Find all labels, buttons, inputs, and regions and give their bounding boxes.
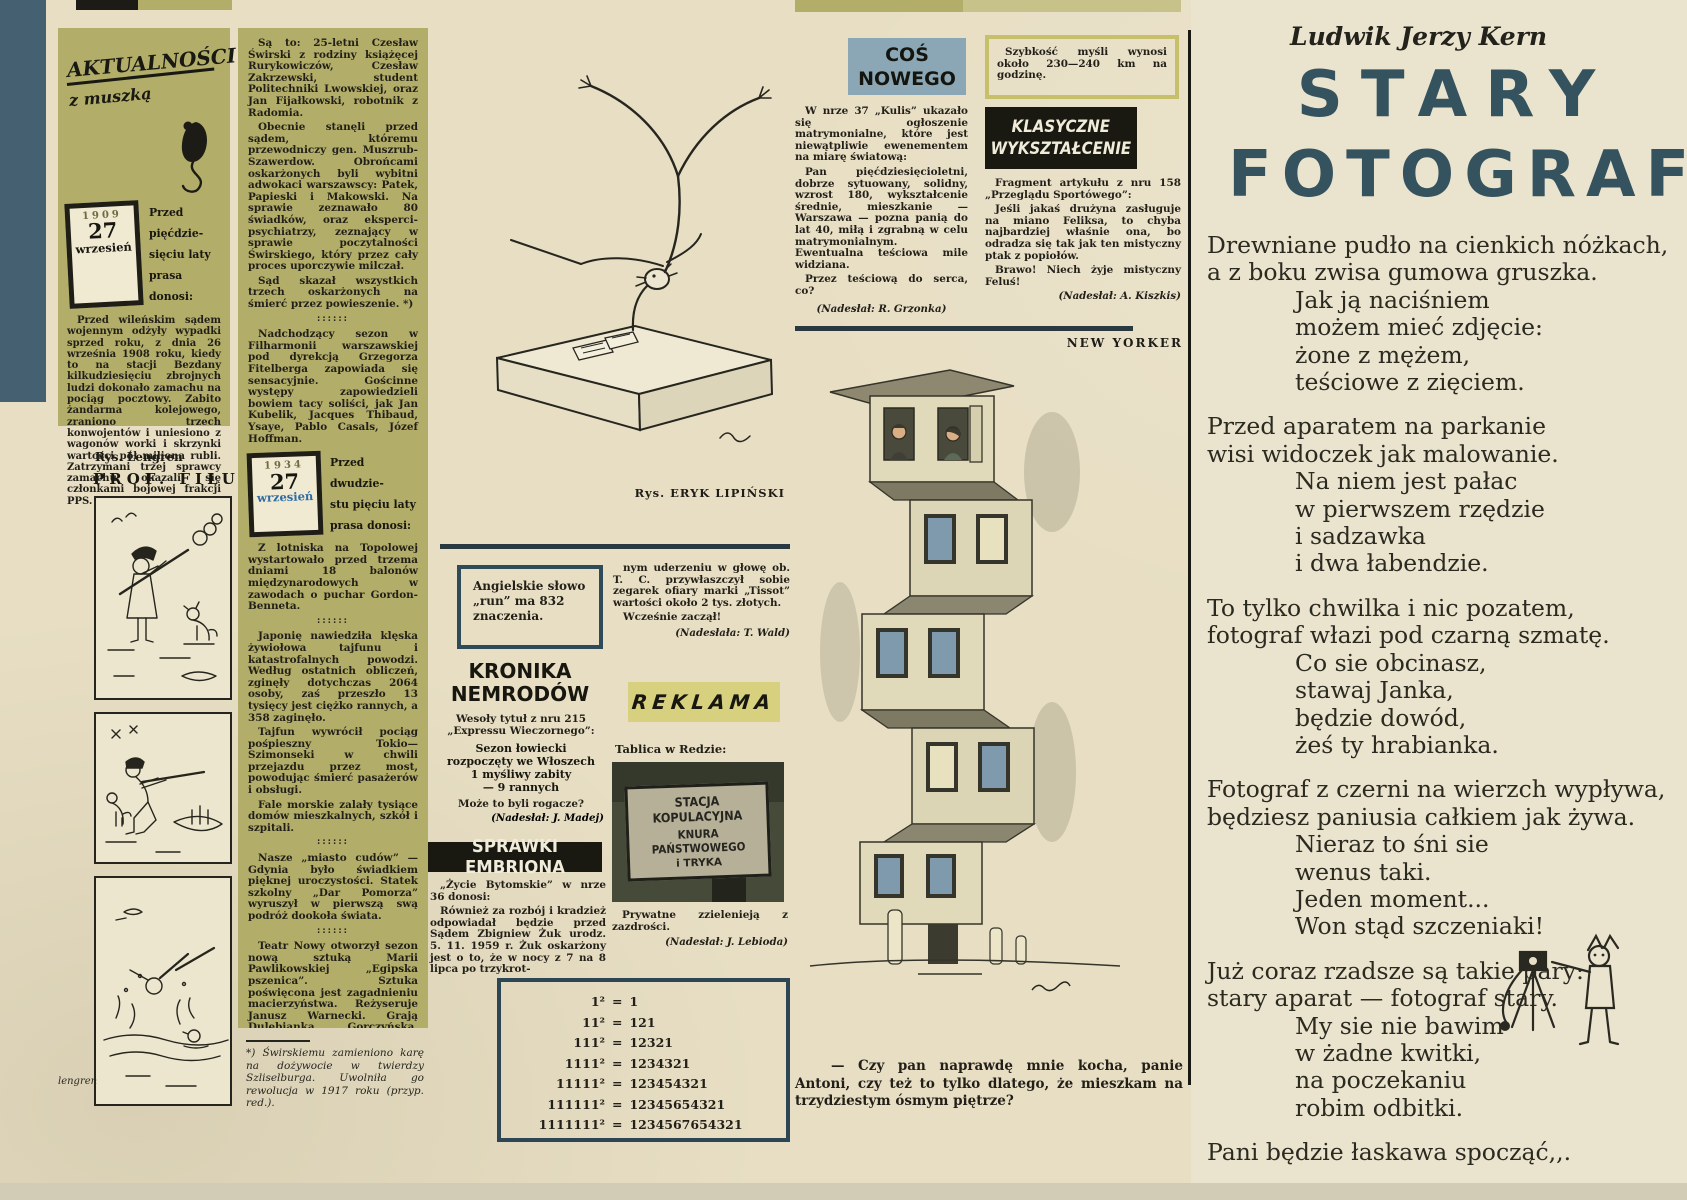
math-row: 11²=121 (527, 1013, 786, 1034)
sign-board: STACJA KOPULACYJNA KNURA PAŃSTWOWEGO i T… (624, 782, 771, 882)
math-equals: = (605, 1054, 629, 1075)
sprawki-intro: „Życie Bytomskie” w nrze 36 donosi: (430, 880, 606, 903)
news-paragraph: Z lotniska na Topolowej wystartowało prz… (248, 543, 418, 613)
cos-paragraph: Pan pięćdziesięcioletni, dobrze sytuowan… (795, 167, 968, 271)
math-left: 1111111² (527, 1115, 605, 1136)
math-right: 12321 (629, 1033, 673, 1054)
photographer-doodle-drawing (1492, 922, 1632, 1062)
date-badge-1934: 1934 27 wrzesień (247, 451, 324, 538)
klasyczne-intro: Fragment artykułu z nru 158 „Przeglądu S… (985, 178, 1181, 201)
news-column-b: Są to: 25-letni Czesław Świrski z rodzin… (238, 28, 428, 1028)
poem-author: Ludwik Jerzy Kern (1290, 22, 1547, 51)
badge-row-1934: 1934 27 wrzesień Przed dwudzie- stu pięc… (248, 452, 418, 536)
lead-1934: Przed dwudzie- stu pięciu laty prasa don… (330, 452, 418, 536)
klasyczne-credit: (Nadesłał: A. Kiszkis) (985, 291, 1181, 303)
news-paragraph: Nadchodzący sezon w Filharmonii warszaws… (248, 329, 418, 445)
cos-paragraph: Przez teściową do serca, co? (795, 274, 968, 297)
top-strip-black (76, 0, 138, 10)
poem-lines-indented: Na niem jest pałac w pierwszem rzędzie i… (1295, 468, 1677, 578)
rys-lipinski-caption: Rys. ERYK LIPIŃSKI (595, 486, 785, 500)
building-cartoon-drawing (800, 352, 1130, 1007)
math-row: 1111²=1234321 (527, 1054, 786, 1075)
kronika-intro: Wesoły tytuł z nru 215 „Expressu Wieczor… (432, 714, 610, 738)
section-separator: :::::: (248, 926, 418, 938)
math-equals: = (605, 1033, 629, 1054)
cos-paragraph: W nrze 37 „Kulis” ukazało się ogłoszenie… (795, 106, 968, 164)
klasyczne-banner: KLASYCZNE WYKSZTAŁCENIE (985, 107, 1137, 169)
comic-drawing-hunter-aiming (96, 498, 230, 698)
sign-line-1: STACJA KOPULACYJNA (636, 792, 758, 826)
reklama-credit: (Nadesłał: J. Lebioda) (612, 937, 788, 949)
footnote: *) Świrskiemu zamieniono karę na dożywoc… (246, 1040, 424, 1110)
poem-stanza: To tylko chwilka i nic pozatem, fotograf… (1207, 595, 1677, 759)
magazine-page: AKTUALNOŚCI z muszką 1909 27 wrzesień Pr… (0, 0, 1687, 1200)
math-right: 1234321 (629, 1054, 690, 1075)
bottom-band (0, 1183, 1687, 1200)
poem-stanza: Drewniane pudło na cienkich nóżkach, a z… (1207, 232, 1677, 396)
poem-stanza: Fotograf z czerni na wierzch wypływa, bę… (1207, 776, 1677, 940)
math-left: 111² (527, 1033, 605, 1054)
klasyczne-paragraph: Brawo! Niech żyje mistyczny Feluś! (985, 265, 1181, 288)
math-row: 1111111²=1234567654321 (527, 1115, 786, 1136)
reklama-box: REKLAMA (628, 682, 780, 722)
comic-drawing-hunter-in-water (96, 878, 230, 1104)
szybkosc-text: Szybkość myśli wynosi około 230—240 km n… (997, 47, 1167, 82)
math-equals: = (605, 1074, 629, 1095)
rys-lengren-caption: Rys. Lengren (95, 450, 183, 464)
poem-lines-indented: Co sie obcinasz, stawaj Janka, będzie do… (1295, 650, 1677, 760)
comic-panel-3 (94, 876, 232, 1106)
math-right: 1 (629, 992, 638, 1013)
cartoon-caption: — Czy pan naprawdę mnie kocha, panie Ant… (795, 1058, 1183, 1111)
top-strip-olive-2 (795, 0, 963, 12)
news-paragraph: Teatr Nowy otworzył sezon nową sztuką Ma… (248, 941, 418, 1028)
left-edge-band (0, 0, 46, 402)
math-left: 1111² (527, 1054, 605, 1075)
sign-line-3: i TRYKA (632, 855, 766, 872)
math-left: 1² (527, 992, 605, 1013)
comic-drawing-hunter-stalking (96, 714, 230, 862)
poem-lines-wide: Przed aparatem na parkanie wisi widoczek… (1207, 413, 1677, 468)
comic-panel-1 (94, 496, 232, 700)
section-separator: :::::: (248, 314, 418, 326)
sign-photo: STACJA KOPULACYJNA KNURA PAŃSTWOWEGO i T… (612, 762, 784, 902)
badge-row-1909: 1909 27 wrzesień Przed pięćdzie- sięciu … (67, 202, 221, 307)
math-equals: = (605, 992, 629, 1013)
math-equals: = (605, 1013, 629, 1034)
news-paragraph: Są to: 25-letni Czesław Świrski z rodzin… (248, 38, 418, 119)
math-row: 111111²=12345654321 (527, 1095, 786, 1116)
math-equals: = (605, 1095, 629, 1116)
news-paragraph: Obecnie stanęli przed sądem, któremu prz… (248, 122, 418, 273)
footnote-rule (246, 1040, 310, 1042)
kronika-title: KRONIKA NEMRODÓW (430, 660, 610, 706)
top-strip-olive-1 (138, 0, 232, 10)
kronika-credit: (Nadesłał: J. Madej) (432, 812, 604, 824)
new-yorker-label: NEW YORKER (1048, 336, 1183, 350)
poem-lines-wide: Fotograf z czerni na wierzch wypływa, bę… (1207, 776, 1677, 831)
cos-nowego-banner: COŚ NOWEGO (848, 38, 966, 95)
conductor-cartoon-drawing (435, 38, 785, 483)
reklama-intro: Tablica w Redzie: (615, 742, 726, 756)
math-left: 111111² (527, 1095, 605, 1116)
footnote-text: *) Świrskiemu zamieniono karę na dożywoc… (246, 1047, 424, 1110)
badge-month: wrzesień (255, 491, 315, 505)
poem-final-line: Pani będzie łaskawa spocząć,,. (1207, 1139, 1677, 1166)
math-box: 1²=1 11²=121 111²=12321 1111²=1234321 11… (497, 978, 790, 1142)
poem-title-line-2: FOTOGRAF (1228, 138, 1687, 212)
poem-stanza: Przed aparatem na parkanie wisi widoczek… (1207, 413, 1677, 577)
math-left: 11² (527, 1013, 605, 1034)
math-row: 11111²=123454321 (527, 1074, 786, 1095)
math-row: 111²=12321 (527, 1033, 786, 1054)
section-separator: :::::: (248, 837, 418, 849)
comic-signature: lengren (58, 1076, 97, 1087)
date-badge-1909: 1909 27 wrzesień (64, 200, 143, 309)
news-paragraph: Nasze „miasto cudów” — Gdynia było świad… (248, 853, 418, 923)
sprawki-exclaim: Wcześnie zaczął! (613, 612, 790, 624)
news-paragraph: Sąd skazał wszystkich trzech oskarżonych… (248, 276, 418, 311)
sprawki-paragraph-continued: nym uderzeniu w głowę ob. T. C. przywłas… (613, 563, 790, 609)
poem-title-line-1: STARY (1240, 58, 1670, 132)
math-left: 11111² (527, 1074, 605, 1095)
poem-lines-wide: Drewniane pudło na cienkich nóżkach, a z… (1207, 232, 1677, 287)
kronika-comment: Może to byli rogacze? (432, 798, 610, 810)
sign-line-2: KNURA PAŃSTWOWEGO (638, 825, 760, 857)
lead-1909: Przed pięćdzie- sięciu laty prasa donosi… (149, 202, 221, 307)
top-strip-olive-3 (963, 0, 1181, 12)
reklama-after: Prywatne zzielenieją z zazdrości. (612, 910, 788, 933)
reklama-label: REKLAMA (631, 690, 777, 714)
sprawki-banner: SPRAWKI EMBRIONA (428, 842, 602, 872)
math-row: 1²=1 (527, 992, 786, 1013)
klasyczne-paragraph: Jeśli jakaś drużyna zasługuje na miano F… (985, 204, 1181, 262)
news-paragraph: Japonię nawiedziła klęska żywiołowa tajf… (248, 631, 418, 724)
aktualnosci-logo: AKTUALNOŚCI z muszką (67, 58, 221, 196)
sprawki-title: SPRAWKI EMBRIONA (435, 836, 595, 878)
sprawki-paragraph: Również za rozbój i kradzież odpowiadał … (430, 906, 606, 976)
poem-lines-wide: To tylko chwilka i nic pozatem, fotograf… (1207, 595, 1677, 650)
run-fact-box: Angielskie słowo „run” ma 832 znaczenia. (457, 565, 603, 649)
news-paragraph: Tajfun wywrócił pociąg pośpieszny Tokio—… (248, 727, 418, 797)
cos-credit: (Nadesłał: R. Grzonka) (795, 304, 968, 316)
math-equals: = (605, 1115, 629, 1136)
klasyczne-title: KLASYCZNE WYKSZTAŁCENIE (991, 116, 1132, 160)
badge-month: wrzesień (73, 239, 134, 256)
sprawki-credit: (Nadesłała: T. Wald) (613, 628, 790, 640)
aktualnosci-panel: AKTUALNOŚCI z muszką 1909 27 wrzesień Pr… (58, 28, 230, 426)
poem-lines-indented: Jak ją naciśniem możem mieć zdjęcie: żon… (1295, 287, 1677, 397)
page-divider-rule (1188, 30, 1191, 1085)
szybkosc-box: Szybkość myśli wynosi około 230—240 km n… (985, 35, 1179, 99)
news-paragraph: Fale morskie zalały tysiące domów mieszk… (248, 800, 418, 835)
horizontal-rule-right (795, 326, 1133, 331)
math-right: 1234567654321 (629, 1115, 742, 1136)
math-right: 121 (629, 1013, 655, 1034)
math-right: 123454321 (629, 1074, 707, 1095)
comic-panel-2 (94, 712, 232, 864)
math-right: 12345654321 (629, 1095, 725, 1116)
section-separator: :::::: (248, 616, 418, 628)
mouse-icon (173, 116, 219, 198)
horizontal-rule-middle (440, 544, 790, 549)
kronika-quote: Sezon łowiecki rozpoczęty we Włoszech 1 … (432, 742, 610, 794)
